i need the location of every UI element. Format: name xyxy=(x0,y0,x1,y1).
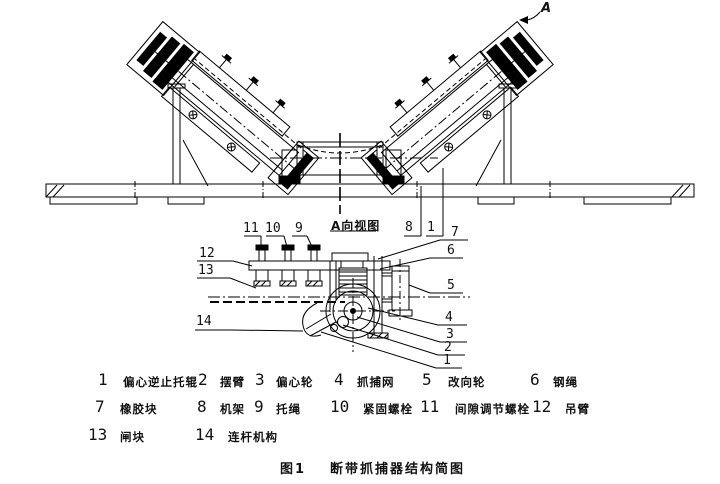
legend-name-14: 连杆机构 xyxy=(228,431,278,444)
callout-5: 5 xyxy=(447,279,455,292)
legend-number-6: 6 xyxy=(530,372,540,388)
legend-number-5: 5 xyxy=(422,372,432,388)
legend-name-10: 紧固螺栓 xyxy=(363,403,413,416)
legend-name-8: 机架 xyxy=(220,403,245,416)
eccentric-wheel xyxy=(320,278,395,352)
callout-6: 6 xyxy=(447,244,455,257)
legend-number-8: 8 xyxy=(197,399,207,415)
left-roller-assembly xyxy=(126,9,332,199)
legend-number-1: 1 xyxy=(98,372,108,388)
legend-name-4: 抓捕网 xyxy=(357,376,395,389)
base-frame xyxy=(46,84,694,204)
callout-8: 8 xyxy=(405,221,413,234)
legend-number-4: 4 xyxy=(334,372,344,388)
callout-4: 4 xyxy=(445,311,453,324)
figure-number-label: 图1 xyxy=(280,458,306,477)
callout-11: 11 xyxy=(243,222,259,235)
callout-7: 7 xyxy=(451,226,459,239)
legend-name-3: 偏心轮 xyxy=(276,376,314,389)
legend-number-2: 2 xyxy=(198,372,208,388)
legend-number-10: 10 xyxy=(330,399,349,415)
legend-number-12: 12 xyxy=(532,399,551,415)
cross-beam xyxy=(249,253,390,270)
callout-9: 9 xyxy=(295,222,303,235)
linkage-mechanism xyxy=(303,303,349,336)
legend-name-7: 橡胶块 xyxy=(120,403,158,416)
view-direction-arrow xyxy=(519,12,540,24)
legend-number-9: 9 xyxy=(254,399,264,415)
legend-name-9: 托绳 xyxy=(276,403,301,416)
legend-name-1: 偏心逆止托辊 xyxy=(123,376,198,389)
legend-number-7: 7 xyxy=(95,399,105,415)
figure-title: 断带抓捕器结构简图 xyxy=(330,458,465,477)
view-a-label: A向视图 xyxy=(331,217,380,234)
callout-10: 10 xyxy=(265,222,281,235)
right-roller-assembly xyxy=(348,9,554,199)
legend-name-5: 改向轮 xyxy=(448,376,486,389)
figure-page: A A向视图 11 10 9 8 1 7 6 5 4 3 2 1 12 13 1… xyxy=(0,0,720,484)
legend-number-3: 3 xyxy=(255,372,265,388)
legend-name-12: 吊臂 xyxy=(565,403,590,416)
fastening-bolts xyxy=(254,245,322,286)
detail-callout-leaders xyxy=(195,231,468,368)
overview-drawing xyxy=(46,9,694,236)
legend-name-13: 闸块 xyxy=(120,431,145,444)
legend-number-14: 14 xyxy=(195,427,214,443)
view-direction-letter: A xyxy=(541,1,551,16)
callout-13: 13 xyxy=(198,264,214,277)
legend-name-6: 钢绳 xyxy=(553,376,578,389)
legend-name-11: 间隙调节螺栓 xyxy=(455,403,530,416)
callout-14: 14 xyxy=(196,315,212,328)
legend-number-11: 11 xyxy=(420,399,439,415)
line-art-drawing xyxy=(0,0,720,484)
legend-name-2: 摆臂 xyxy=(220,376,245,389)
callout-1-top: 1 xyxy=(427,221,435,234)
callout-1-right: 1 xyxy=(443,354,451,367)
rubber-block-stack xyxy=(330,261,367,312)
legend-number-13: 13 xyxy=(88,427,107,443)
detail-view-drawing xyxy=(195,231,470,368)
callout-12: 12 xyxy=(199,247,215,260)
